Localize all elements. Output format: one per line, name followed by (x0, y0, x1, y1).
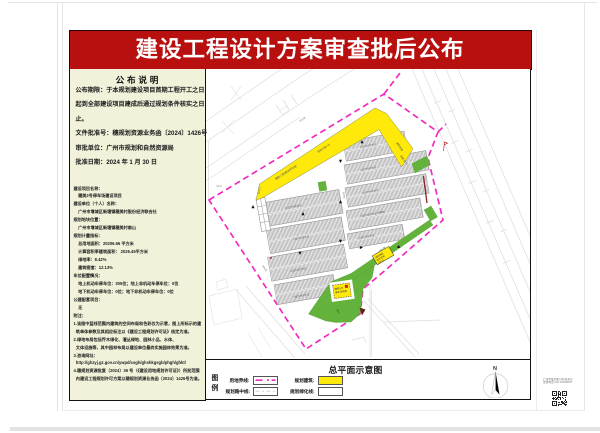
svg-text:穗美涌: 穗美涌 (261, 264, 268, 272)
svg-text:N: N (493, 366, 497, 372)
svg-text:G204: G204 (216, 185, 223, 188)
svg-text:规划路: 规划路 (298, 115, 307, 123)
